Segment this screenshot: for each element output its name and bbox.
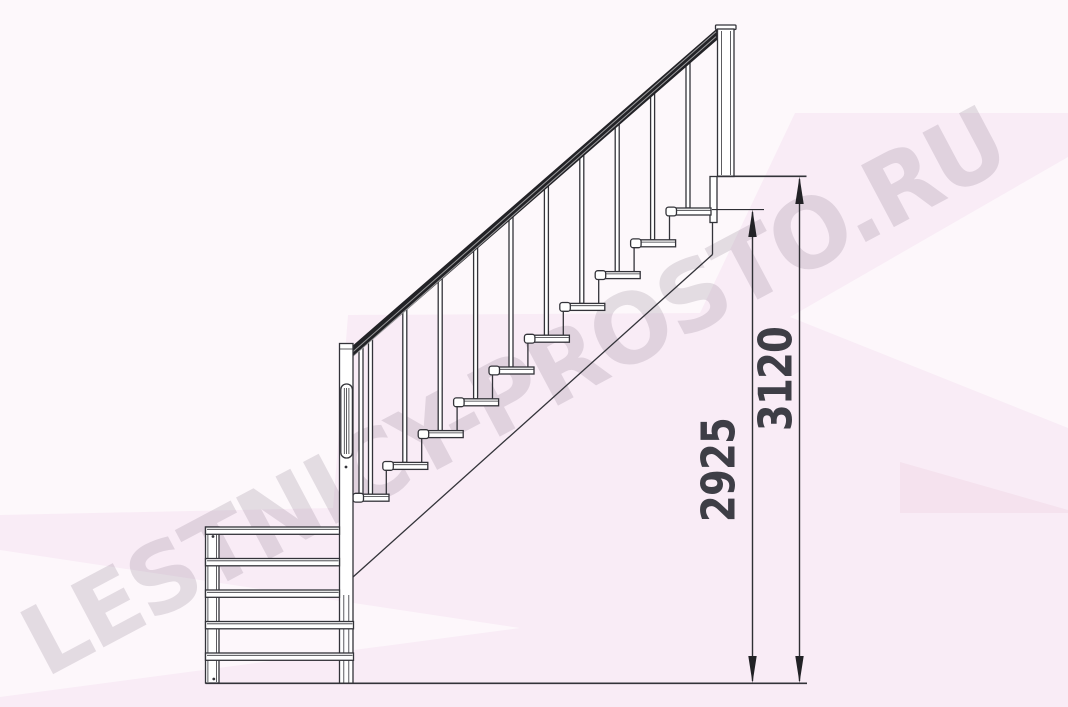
tread-board (638, 240, 676, 247)
lower-step-edge (206, 559, 340, 566)
fastener-dot (212, 678, 215, 681)
lower-step-edge (206, 527, 340, 534)
baluster (544, 185, 548, 335)
tread-board (497, 367, 535, 374)
tread-nosing (383, 462, 394, 471)
arrow-down (795, 656, 803, 683)
arrow-up (748, 210, 756, 238)
lower-step-edge (206, 622, 354, 629)
fastener-dot (345, 466, 348, 469)
baluster (615, 123, 619, 272)
tread-board (461, 399, 499, 406)
tread-board (567, 303, 605, 310)
tread-nosing (560, 303, 571, 312)
top-post-body (718, 29, 735, 177)
tread-nosing (666, 207, 677, 216)
lower-step-edge (206, 653, 354, 660)
tread-nosing (454, 398, 465, 407)
newel-post (340, 344, 354, 684)
baluster (474, 247, 478, 399)
screenshot-canvas: LESTNICY-PROSTO.RU (0, 0, 1068, 707)
fastener-dot (212, 535, 215, 538)
main-flight (353, 61, 711, 502)
arrow-down (748, 656, 756, 683)
baluster (580, 154, 584, 304)
tread-nosing (524, 334, 535, 343)
tread-board (532, 335, 570, 342)
baluster (369, 339, 373, 494)
tread-nosing (418, 430, 429, 439)
arrow-up (795, 177, 803, 205)
baluster (651, 92, 655, 240)
tread-nosing (489, 366, 500, 375)
tread-nosing (353, 493, 364, 502)
dimension-3120: 3120 (750, 177, 803, 684)
handrail (350, 29, 717, 360)
baluster (438, 278, 442, 431)
dimension-value: 2925 (693, 418, 746, 522)
staircase-drawing: 2925 3120 (0, 0, 1068, 707)
tread-board (603, 272, 641, 279)
baluster (686, 61, 690, 208)
handrail-band (350, 29, 717, 360)
dimension-2925: 2925 (693, 210, 764, 684)
tread-board (361, 494, 390, 501)
dimension-value: 3120 (750, 327, 803, 431)
tread-board (426, 431, 464, 438)
lower-winder-steps (206, 527, 354, 683)
baluster (359, 347, 363, 494)
baluster (509, 216, 513, 367)
tread-board (674, 208, 712, 215)
handrail-highlight (353, 37, 716, 357)
handrail-highlight (353, 32, 716, 352)
lower-step-edge (206, 590, 340, 597)
top-newel-post (716, 25, 737, 177)
tread-nosing (631, 239, 642, 248)
tread-nosing (595, 271, 606, 280)
tread-board (390, 462, 428, 469)
baluster (403, 309, 407, 463)
